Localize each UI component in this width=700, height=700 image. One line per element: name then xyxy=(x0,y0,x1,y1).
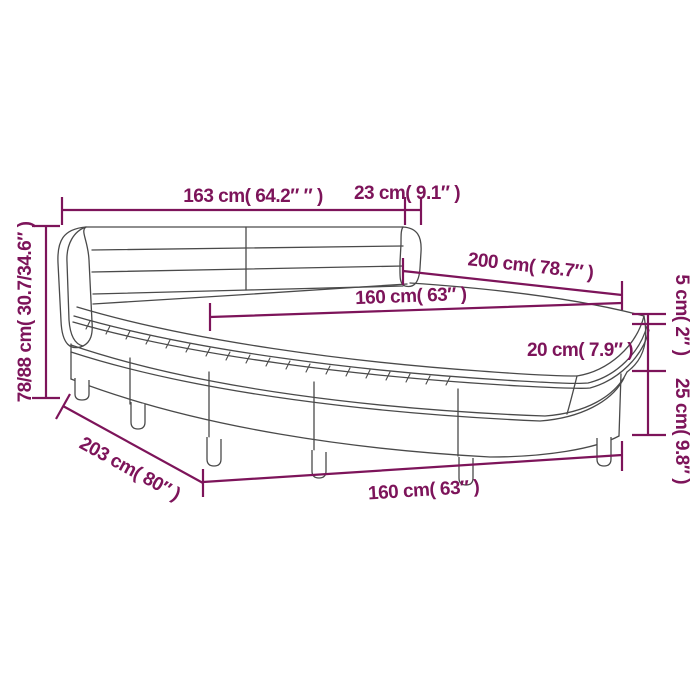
bed-leg xyxy=(75,378,89,400)
label-headboard-overhang: 23 cm( 9.1″ ) xyxy=(354,183,460,204)
label-frame-width: 160 cm( 63″ ) xyxy=(367,477,480,505)
headboard-slat-1 xyxy=(92,246,403,250)
bed-leg xyxy=(597,437,611,466)
label-mattress-thickness: 20 cm( 7.9″ ) xyxy=(527,340,633,361)
topper-piping-hatch xyxy=(86,321,450,385)
bed-dimension-diagram: 163 cm( 64.2″ ″ ) 23 cm( 9.1″ ) 78/88 cm… xyxy=(0,0,700,700)
label-headboard-width: 163 cm( 64.2″ ″ ) xyxy=(183,186,323,207)
label-overall-height: 78/88 cm( 30.7/34.6″ ) xyxy=(15,221,36,402)
headboard-slat-2 xyxy=(92,266,403,272)
label-mattress-width: 160 cm( 63″ ) xyxy=(355,284,467,309)
label-base-height: 25 cm( 9.8″ ) xyxy=(671,378,692,484)
bed-leg xyxy=(207,437,221,466)
label-frame-length: 203 cm( 80″ ) xyxy=(76,433,184,505)
headboard-left-bolster xyxy=(58,227,92,348)
base-bottom-edge xyxy=(71,379,619,457)
mattress-foot-left-crease xyxy=(567,376,577,414)
headboard-left-bolster-inner xyxy=(67,227,86,346)
label-topper-thickness: 5 cm( 2″ ) xyxy=(671,274,692,355)
legs xyxy=(75,378,611,485)
dim-right-heights xyxy=(632,314,666,435)
dim-overall-height xyxy=(32,226,60,398)
label-bed-length: 200 cm( 78.7″ ) xyxy=(467,249,595,284)
bed-leg xyxy=(131,402,145,429)
dim-mattress-width xyxy=(210,303,622,331)
diagram-canvas: 163 cm( 64.2″ ″ ) 23 cm( 9.1″ ) 78/88 cm… xyxy=(0,0,700,700)
